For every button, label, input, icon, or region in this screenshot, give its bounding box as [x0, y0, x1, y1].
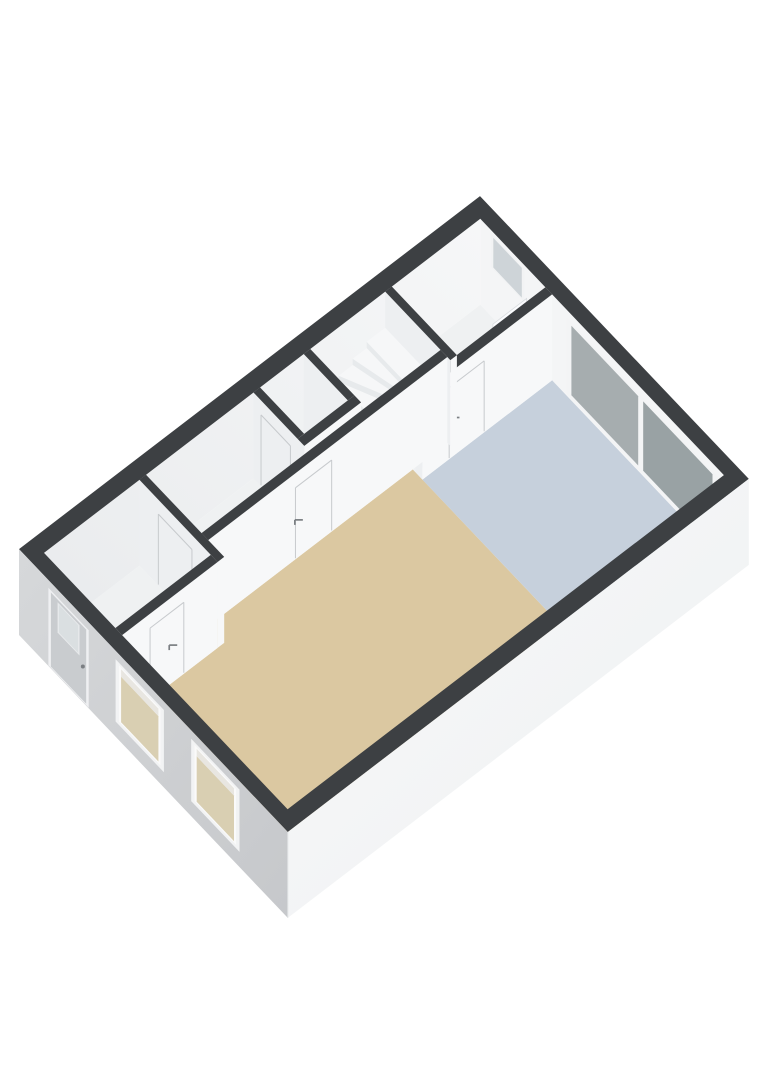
wall-frontroom-hall-end	[450, 355, 457, 446]
front-door-handle	[81, 664, 85, 668]
floorplan-3d-view	[0, 0, 764, 1080]
wall-hall-entry-end	[218, 557, 225, 648]
floorplan-canvas	[0, 0, 764, 1080]
